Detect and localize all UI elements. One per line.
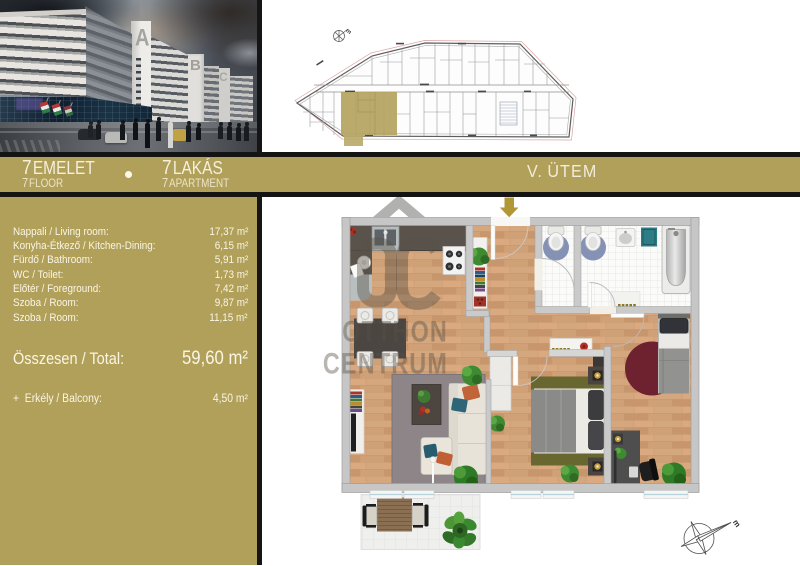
svg-text:m: m xyxy=(344,28,352,36)
svg-text:m: m xyxy=(731,517,742,528)
svg-text:OTTHON: OTTHON xyxy=(342,314,448,347)
svg-text:CENTRUM: CENTRUM xyxy=(323,346,448,379)
